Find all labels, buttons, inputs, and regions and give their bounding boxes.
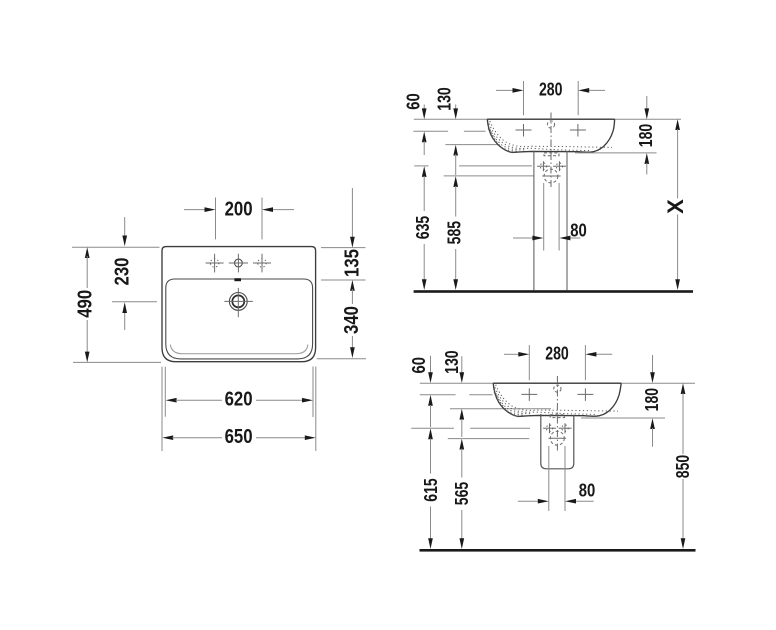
- svg-text:650: 650: [225, 426, 253, 448]
- svg-text:565: 565: [452, 482, 472, 506]
- svg-text:230: 230: [112, 258, 134, 286]
- svg-text:135: 135: [341, 249, 363, 277]
- svg-text:60: 60: [409, 357, 429, 374]
- svg-text:130: 130: [442, 350, 462, 374]
- svg-text:850: 850: [673, 455, 693, 479]
- svg-text:80: 80: [570, 221, 587, 241]
- svg-text:280: 280: [539, 80, 563, 100]
- svg-text:60: 60: [403, 93, 423, 110]
- svg-text:620: 620: [225, 389, 253, 411]
- svg-text:340: 340: [341, 306, 363, 334]
- svg-text:635: 635: [413, 216, 433, 240]
- svg-text:490: 490: [75, 290, 97, 318]
- svg-text:280: 280: [545, 344, 569, 364]
- svg-text:200: 200: [225, 198, 253, 220]
- svg-text:585: 585: [445, 221, 465, 245]
- svg-text:130: 130: [434, 87, 454, 111]
- svg-text:615: 615: [421, 478, 441, 502]
- svg-text:80: 80: [579, 480, 596, 500]
- svg-text:180: 180: [636, 124, 656, 148]
- svg-text:X: X: [663, 199, 688, 214]
- svg-text:180: 180: [642, 388, 662, 412]
